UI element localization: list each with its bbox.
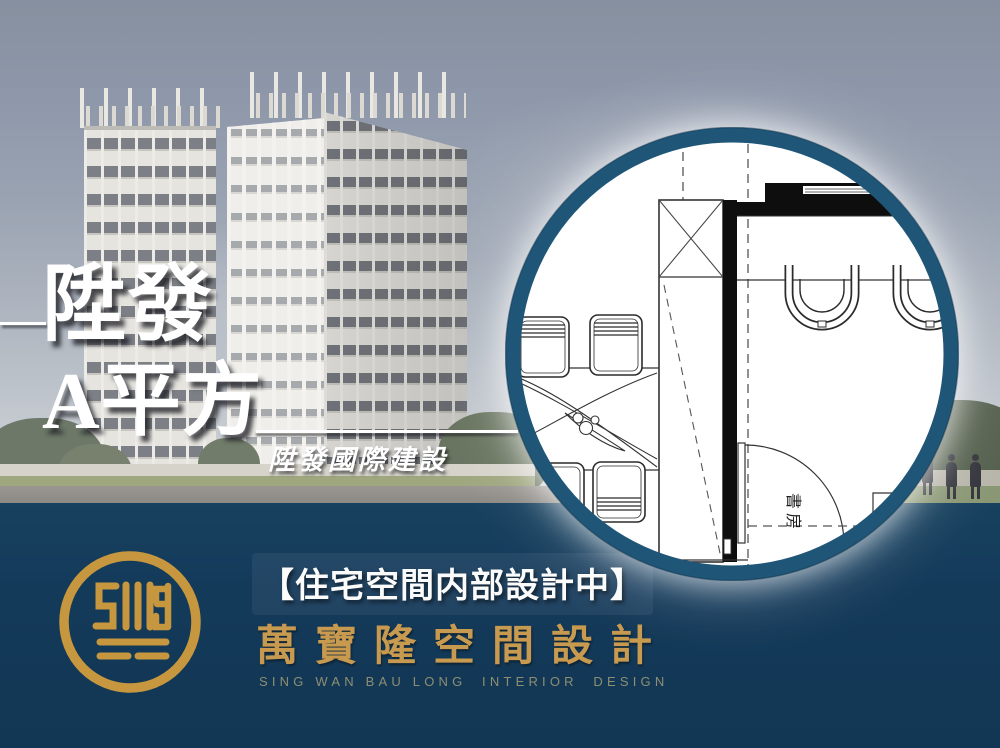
roof-spike-bars — [256, 93, 466, 118]
tower-right-roof-spikes — [250, 72, 460, 118]
brand-name-en: SING WAN BAU LONG INTERIOR DESIGN — [259, 674, 668, 689]
brand-name-cn: 萬寶隆空間設計 — [256, 612, 669, 673]
poster: 【住宅空間内部設計中】 萬寶隆空間設計 SING WAN BAU LONG IN… — [0, 0, 1000, 748]
cabinet-column — [659, 200, 723, 562]
floor-plan-drawing: 書房 — [505, 127, 959, 581]
floor-plan-magnifier: 書房 — [505, 127, 959, 581]
room-label: 書房 — [784, 493, 802, 533]
company-logo — [54, 546, 206, 698]
tower-left-roof-spikes — [80, 88, 220, 128]
swb-monogram-icon — [64, 556, 196, 688]
roof-spike-bars — [86, 106, 226, 128]
wall — [723, 202, 898, 216]
door-leaf — [738, 443, 745, 543]
wall — [723, 200, 737, 562]
pedestrian — [970, 462, 981, 487]
